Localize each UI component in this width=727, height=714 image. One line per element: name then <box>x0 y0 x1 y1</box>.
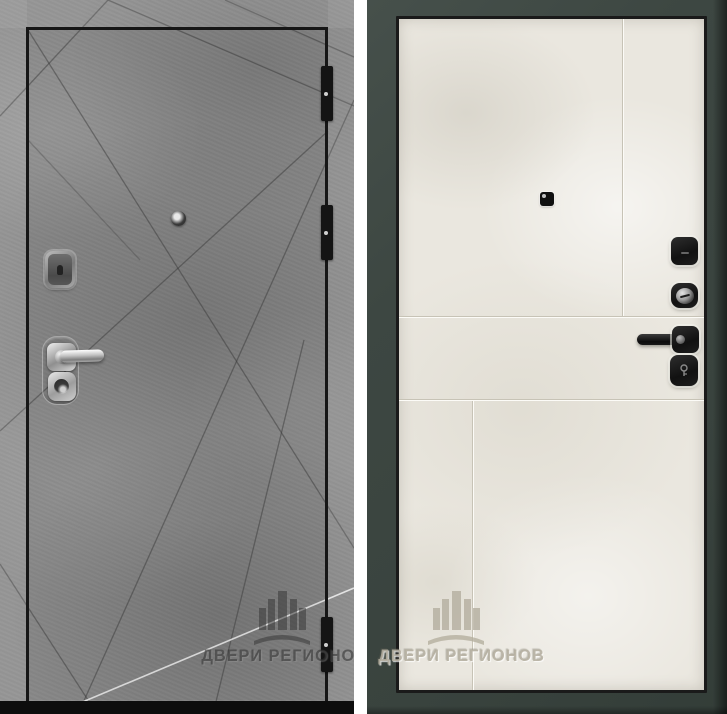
panel-groove-vertical-lower <box>472 401 474 690</box>
frame-right-shadow <box>713 0 727 714</box>
door-front-view: ДВЕРИ РЕГИОНОВ <box>0 0 354 714</box>
knob-face <box>676 288 694 304</box>
panel-groove-vertical-upper <box>622 19 624 317</box>
hinge-middle <box>321 205 333 260</box>
photo-divider <box>354 0 367 714</box>
door-frame-left <box>0 0 27 714</box>
upper-lock-escutcheon <box>671 237 698 265</box>
door-product-photo: ДВЕРИ РЕГИОНОВ <box>0 0 727 714</box>
panel-groove-horizontal-2 <box>399 399 704 401</box>
door-frame-top <box>0 0 354 28</box>
upper-lock-escutcheon <box>45 251 75 288</box>
leaf-outline-top <box>26 27 328 30</box>
leaf-hinge-edge <box>325 27 328 703</box>
hinge-top <box>321 66 333 121</box>
cream-panel <box>399 19 704 690</box>
handle-rose <box>672 326 699 353</box>
cylinder-escutcheon <box>670 355 698 386</box>
keyhole <box>57 265 63 275</box>
cylinder-lock <box>48 372 76 401</box>
leaf-outline-left <box>26 27 29 703</box>
door-bottom-shadow <box>0 701 354 714</box>
peephole <box>540 192 554 206</box>
lever-handle <box>60 349 104 363</box>
panel-border <box>396 16 707 693</box>
thumbturn-knob <box>671 283 698 308</box>
hinge-bottom <box>321 617 333 672</box>
door-back-view: ДВЕРИ РЕГИОНОВ <box>367 0 727 714</box>
panel-groove-horizontal-1 <box>399 316 704 318</box>
frame-bottom-shadow <box>367 706 727 714</box>
peephole <box>171 211 186 226</box>
key-glyph-icon <box>679 364 689 378</box>
